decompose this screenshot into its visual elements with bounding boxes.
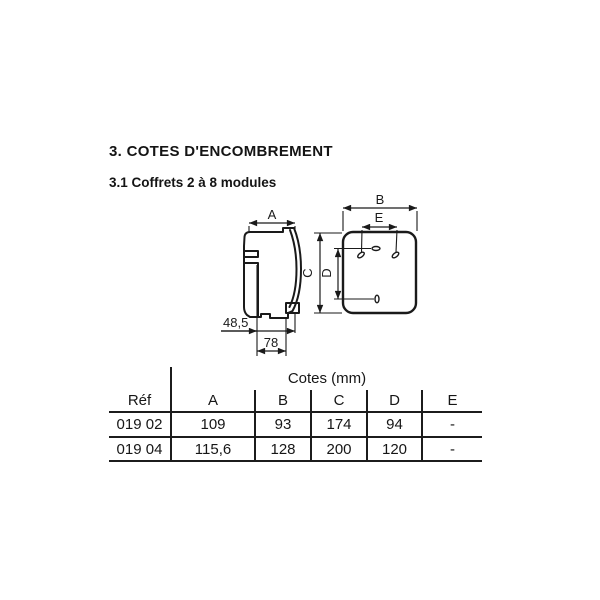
column-header-a: A [172,390,256,411]
dim-label-b: B [376,192,385,207]
cell-e: - [423,438,482,460]
side-view-drawing: A 48,5 78 [221,207,301,356]
table-header-row: Réf A B C D E [109,390,482,413]
column-header-b: B [256,390,312,411]
dim-label-78: 78 [264,335,278,350]
table-row: 019 04 115,6 128 200 120 - [109,438,482,462]
cell-b: 93 [256,413,312,436]
dim-label-a: A [268,207,277,222]
fixing-hole-bottom [375,295,379,303]
document-page: 3. COTES D'ENCOMBREMENT 3.1 Coffrets 2 à… [0,0,600,600]
technical-drawing: A 48,5 78 B E [0,0,600,600]
cell-c: 174 [312,413,368,436]
cell-d: 94 [368,413,423,436]
cell-d: 120 [368,438,423,460]
table-corner-cell [109,367,172,390]
extension-line [396,230,397,252]
column-header-c: C [312,390,368,411]
cell-a: 109 [172,413,256,436]
front-view-drawing: B E C D [300,192,417,313]
cell-b: 128 [256,438,312,460]
column-header-d: D [368,390,423,411]
fixing-hole-top-center [372,247,380,251]
cell-a: 115,6 [172,438,256,460]
cell-c: 200 [312,438,368,460]
table-group-header-row: Cotes (mm) [109,367,482,390]
dim-label-e: E [375,210,384,225]
dim-label-48-5: 48,5 [223,315,248,330]
table-row: 019 02 109 93 174 94 - [109,413,482,438]
cell-ref: 019 02 [109,413,172,436]
dim-label-d: D [319,268,334,277]
dim-label-c: C [300,268,315,277]
column-header-ref: Réf [109,390,172,411]
fixing-hole-top-left [357,251,365,259]
table-group-header: Cotes (mm) [172,367,482,390]
fixing-hole-top-right [391,251,399,259]
column-header-e: E [423,390,482,411]
cell-ref: 019 04 [109,438,172,460]
cell-e: - [423,413,482,436]
side-view-outline [244,228,301,318]
dimensions-table: Cotes (mm) Réf A B C D E 019 02 109 93 1… [109,367,482,462]
